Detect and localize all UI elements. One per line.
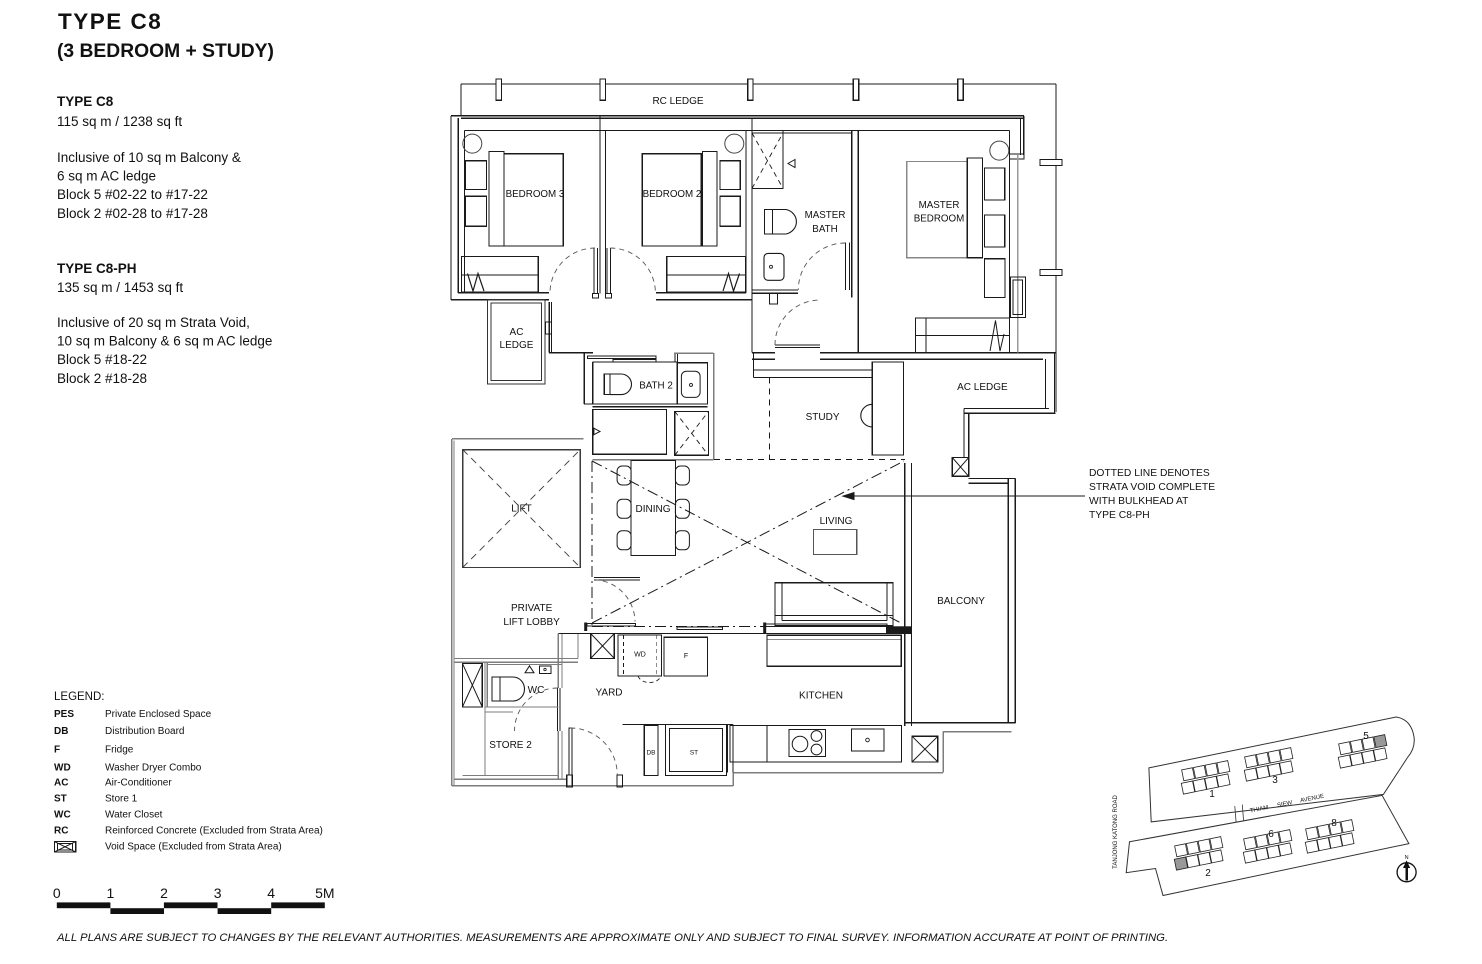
svg-text:LEGEND:: LEGEND: <box>54 691 105 703</box>
svg-text:BEDROOM 3: BEDROOM 3 <box>506 189 565 200</box>
svg-text:F: F <box>54 744 60 755</box>
svg-text:DINING: DINING <box>636 504 671 515</box>
svg-text:Inclusive of 10 sq m Balcony &: Inclusive of 10 sq m Balcony & <box>57 150 241 165</box>
svg-text:LEDGE: LEDGE <box>500 340 534 351</box>
svg-text:Distribution Board: Distribution Board <box>105 726 184 737</box>
svg-text:AC LEDGE: AC LEDGE <box>957 382 1008 393</box>
svg-text:10 sq m Balcony & 6 sq m AC le: 10 sq m Balcony & 6 sq m AC ledge <box>57 334 272 349</box>
svg-text:Block 2 #18-28: Block 2 #18-28 <box>57 371 147 386</box>
svg-text:RC LEDGE: RC LEDGE <box>652 96 703 107</box>
svg-text:6: 6 <box>1268 829 1274 840</box>
svg-text:BEDROOM 2: BEDROOM 2 <box>643 189 702 200</box>
svg-text:0: 0 <box>53 885 61 901</box>
svg-text:Void Space (Excluded from Stra: Void Space (Excluded from Strata Area) <box>105 842 282 853</box>
svg-text:WC: WC <box>528 685 545 696</box>
svg-text:3: 3 <box>214 885 222 901</box>
svg-text:115 sq m / 1238 sq ft: 115 sq m / 1238 sq ft <box>57 114 182 129</box>
svg-text:PRIVATE: PRIVATE <box>511 603 553 614</box>
svg-text:DOTTED LINE DENOTES: DOTTED LINE DENOTES <box>1089 468 1210 479</box>
svg-text:Block 5 #02-22 to #17-22: Block 5 #02-22 to #17-22 <box>57 187 208 202</box>
svg-text:PES: PES <box>54 709 74 720</box>
svg-text:BALCONY: BALCONY <box>937 596 985 607</box>
svg-text:YARD: YARD <box>595 688 622 699</box>
svg-text:Inclusive of 20 sq m Strata Vo: Inclusive of 20 sq m Strata Void, <box>57 315 250 330</box>
svg-text:DB: DB <box>54 726 68 737</box>
svg-text:TYPE C8: TYPE C8 <box>58 9 162 34</box>
svg-text:Water Closet: Water Closet <box>105 809 163 820</box>
svg-text:F: F <box>684 653 688 660</box>
svg-text:LIFT: LIFT <box>511 504 532 515</box>
svg-text:WD: WD <box>634 652 646 659</box>
svg-text:Block 2 #02-28 to #17-28: Block 2 #02-28 to #17-28 <box>57 206 208 221</box>
svg-text:WC: WC <box>54 809 71 820</box>
svg-text:Washer Dryer Combo: Washer Dryer Combo <box>105 762 202 773</box>
svg-text:5: 5 <box>1363 731 1369 742</box>
svg-text:BEDROOM: BEDROOM <box>914 214 965 225</box>
svg-text:3: 3 <box>1272 775 1278 786</box>
svg-text:2: 2 <box>160 885 168 901</box>
svg-text:AC: AC <box>510 327 524 338</box>
svg-text:STRATA VOID COMPLETE: STRATA VOID COMPLETE <box>1089 482 1215 493</box>
svg-text:(3 BEDROOM + STUDY): (3 BEDROOM + STUDY) <box>57 41 274 62</box>
svg-text:DB: DB <box>646 750 655 757</box>
svg-text:Block 5 #18-22: Block 5 #18-22 <box>57 352 147 367</box>
svg-text:ALL PLANS ARE SUBJECT TO CHANG: ALL PLANS ARE SUBJECT TO CHANGES BY THE … <box>56 932 1168 944</box>
svg-text:6 sq m AC ledge: 6 sq m AC ledge <box>57 169 156 184</box>
svg-text:2: 2 <box>1205 868 1211 879</box>
svg-text:BATH: BATH <box>812 224 837 235</box>
svg-text:TYPE C8-PH: TYPE C8-PH <box>57 261 137 276</box>
svg-text:1: 1 <box>107 885 115 901</box>
svg-text:MASTER: MASTER <box>919 200 960 211</box>
svg-text:Private Enclosed Space: Private Enclosed Space <box>105 709 212 720</box>
svg-text:N: N <box>1405 855 1409 861</box>
svg-text:MASTER: MASTER <box>805 210 846 221</box>
svg-text:WITH BULKHEAD AT: WITH BULKHEAD AT <box>1089 496 1189 507</box>
svg-text:BATH 2: BATH 2 <box>639 381 673 392</box>
svg-text:RC: RC <box>54 826 68 837</box>
svg-text:Fridge: Fridge <box>105 744 134 755</box>
svg-text:Air-Conditioner: Air-Conditioner <box>105 778 172 789</box>
svg-text:LIFT LOBBY: LIFT LOBBY <box>503 617 560 628</box>
svg-text:4: 4 <box>267 885 275 901</box>
svg-text:5M: 5M <box>315 885 334 901</box>
svg-text:KITCHEN: KITCHEN <box>799 691 843 702</box>
svg-text:1: 1 <box>1209 789 1215 800</box>
svg-text:STUDY: STUDY <box>806 412 840 423</box>
svg-text:LIVING: LIVING <box>820 516 853 527</box>
svg-text:Store 1: Store 1 <box>105 793 138 804</box>
svg-text:ST: ST <box>54 793 67 804</box>
svg-text:TYPE C8-PH: TYPE C8-PH <box>1089 510 1150 521</box>
svg-text:135 sq m / 1453 sq ft: 135 sq m / 1453 sq ft <box>57 280 183 295</box>
svg-text:AC: AC <box>54 778 68 789</box>
svg-text:Reinforced Concrete (Excluded: Reinforced Concrete (Excluded from Strat… <box>105 826 323 837</box>
svg-text:STORE 2: STORE 2 <box>489 740 532 751</box>
svg-text:TANJONG KATONG ROAD: TANJONG KATONG ROAD <box>1113 795 1119 869</box>
svg-text:TYPE C8: TYPE C8 <box>57 94 114 109</box>
svg-text:8: 8 <box>1331 818 1337 829</box>
svg-text:WD: WD <box>54 762 71 773</box>
svg-text:ST: ST <box>690 750 698 757</box>
